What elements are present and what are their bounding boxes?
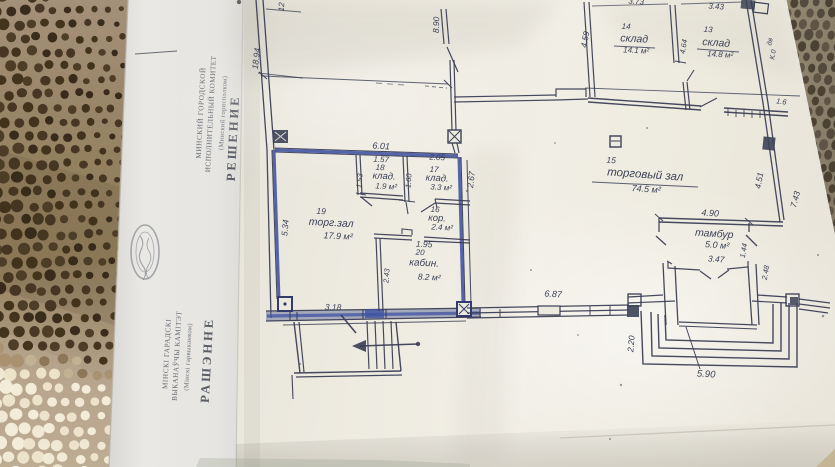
svg-text:5.0 м²: 5.0 м² [705,239,731,251]
svg-text:1.9 м²: 1.9 м² [375,181,397,191]
svg-text:кабин.: кабин. [409,256,439,270]
svg-text:3.43: 3.43 [708,1,725,11]
svg-text:6.87: 6.87 [544,289,563,300]
svg-text:5.90: 5.90 [697,369,717,381]
svg-text:1.53: 1.53 [354,172,364,188]
svg-text:14: 14 [621,22,631,31]
svg-text:4.90: 4.90 [701,207,719,218]
svg-text:торг.зал: торг.зал [308,216,353,230]
svg-text:13: 13 [703,25,713,35]
svg-text:20: 20 [414,248,425,258]
svg-text:2.43: 2.43 [381,267,391,284]
svg-text:склад: склад [702,36,731,50]
svg-text:склад: склад [620,32,649,45]
svg-text:2.4 м²: 2.4 м² [430,222,453,232]
svg-text:3.47: 3.47 [708,253,725,264]
svg-text:8.2 м²: 8.2 м² [417,271,441,282]
svg-text:12: 12 [277,2,287,12]
svg-text:3.3 м²: 3.3 м² [430,182,452,192]
svg-text:1.6: 1.6 [776,96,788,106]
svg-text:6.01: 6.01 [372,141,390,152]
svg-text:19: 19 [316,206,326,216]
svg-text:2.05: 2.05 [428,153,446,163]
svg-text:2.20: 2.20 [625,335,637,354]
svg-text:5.34: 5.34 [279,219,290,237]
svg-text:15: 15 [606,155,616,166]
svg-text:3.18: 3.18 [325,302,342,313]
svg-text:17.9 м²: 17.9 м² [323,230,354,242]
svg-text:8.90: 8.90 [431,16,442,33]
svg-text:3.73: 3.73 [628,0,645,7]
svg-text:1.60: 1.60 [403,172,413,188]
